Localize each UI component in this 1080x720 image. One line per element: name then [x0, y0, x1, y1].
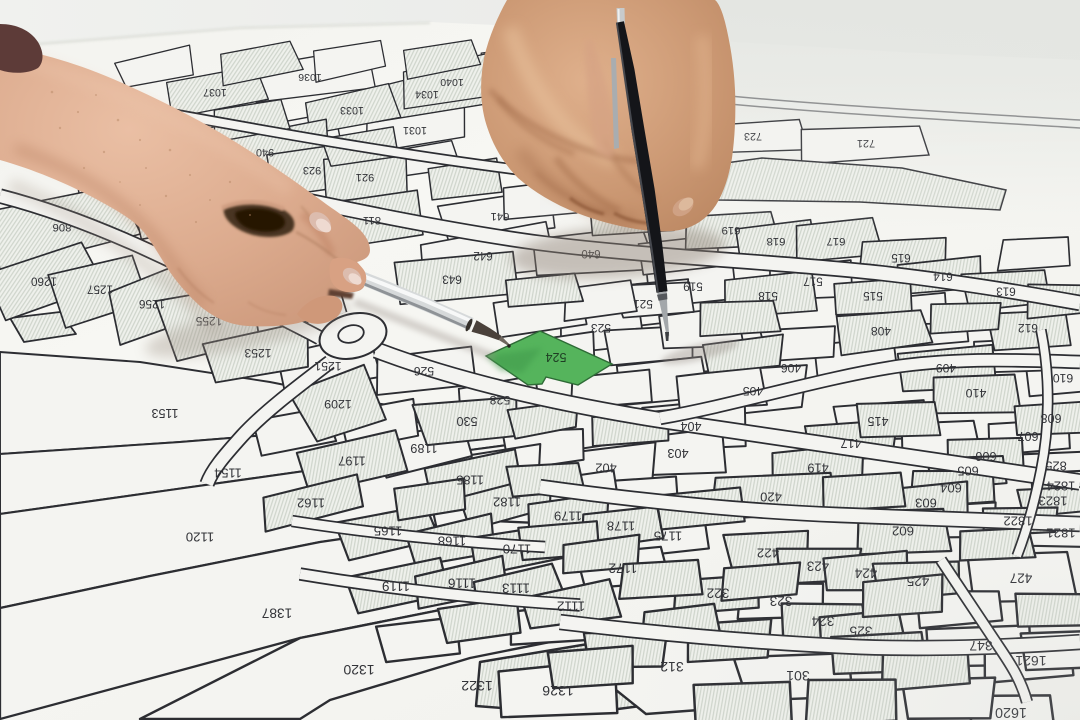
svg-text:615: 615 — [891, 251, 910, 263]
svg-text:643: 643 — [442, 273, 462, 286]
svg-text:1172: 1172 — [609, 561, 638, 576]
svg-text:405: 405 — [743, 384, 764, 398]
svg-text:517: 517 — [803, 275, 823, 288]
svg-text:515: 515 — [863, 289, 883, 303]
svg-text:1040: 1040 — [440, 76, 464, 88]
svg-text:1326: 1326 — [542, 683, 574, 699]
svg-text:825: 825 — [1045, 459, 1066, 474]
svg-text:606: 606 — [975, 449, 996, 463]
svg-text:1320: 1320 — [343, 662, 374, 678]
svg-text:1197: 1197 — [338, 454, 366, 469]
svg-text:409: 409 — [936, 361, 957, 375]
svg-text:1178: 1178 — [607, 519, 635, 534]
svg-text:723: 723 — [744, 130, 762, 142]
svg-text:1033: 1033 — [340, 104, 364, 116]
svg-text:1165: 1165 — [374, 524, 402, 539]
svg-text:1031: 1031 — [403, 124, 427, 136]
svg-text:641: 641 — [491, 210, 510, 222]
svg-text:403: 403 — [667, 446, 688, 460]
svg-text:1119: 1119 — [382, 579, 410, 594]
svg-text:408: 408 — [871, 324, 891, 338]
svg-text:1322: 1322 — [461, 678, 493, 694]
svg-text:528: 528 — [490, 393, 511, 407]
svg-text:1112: 1112 — [557, 599, 585, 614]
svg-text:605: 605 — [957, 464, 978, 479]
svg-text:1260: 1260 — [31, 275, 58, 288]
svg-text:417: 417 — [840, 436, 861, 450]
svg-text:518: 518 — [758, 289, 778, 303]
svg-text:1162: 1162 — [297, 496, 325, 511]
svg-text:1113: 1113 — [502, 581, 530, 596]
svg-text:613: 613 — [996, 285, 1016, 298]
svg-text:618: 618 — [766, 235, 785, 247]
svg-text:419: 419 — [807, 461, 828, 476]
svg-text:519: 519 — [683, 280, 703, 293]
svg-text:1168: 1168 — [438, 534, 466, 549]
svg-text:612: 612 — [1018, 321, 1038, 335]
svg-text:1116: 1116 — [448, 576, 476, 591]
svg-text:404: 404 — [680, 419, 701, 433]
svg-text:1256: 1256 — [138, 297, 165, 311]
svg-text:524: 524 — [546, 350, 567, 364]
svg-text:530: 530 — [457, 414, 478, 428]
svg-text:1209: 1209 — [324, 397, 352, 411]
svg-text:1251: 1251 — [314, 359, 341, 373]
svg-text:1185: 1185 — [456, 473, 484, 488]
svg-text:608: 608 — [1041, 411, 1062, 425]
svg-text:806: 806 — [52, 221, 71, 233]
svg-text:1179: 1179 — [554, 509, 582, 524]
svg-text:940: 940 — [256, 146, 274, 158]
svg-text:1387: 1387 — [262, 606, 292, 621]
svg-text:1182: 1182 — [493, 495, 521, 510]
svg-text:1034: 1034 — [415, 88, 439, 100]
svg-text:523: 523 — [591, 321, 611, 335]
svg-text:406: 406 — [781, 361, 802, 375]
svg-text:811: 811 — [363, 214, 381, 226]
svg-text:410: 410 — [966, 386, 987, 400]
svg-text:526: 526 — [414, 364, 435, 378]
svg-text:921: 921 — [356, 171, 375, 183]
svg-text:1257: 1257 — [87, 283, 113, 296]
svg-text:617: 617 — [826, 235, 845, 247]
svg-text:642: 642 — [473, 249, 492, 261]
svg-text:923: 923 — [303, 164, 321, 176]
svg-text:521: 521 — [633, 297, 653, 311]
svg-text:610: 610 — [1053, 371, 1074, 385]
svg-text:1154: 1154 — [214, 466, 242, 481]
svg-text:614: 614 — [933, 270, 953, 283]
svg-text:1036: 1036 — [298, 71, 322, 83]
svg-text:721: 721 — [857, 137, 875, 149]
svg-text:1189: 1189 — [410, 441, 437, 455]
svg-text:1170: 1170 — [503, 542, 532, 557]
svg-text:607: 607 — [1017, 429, 1038, 443]
svg-text:415: 415 — [868, 414, 889, 428]
svg-text:1120: 1120 — [186, 530, 214, 545]
svg-text:1153: 1153 — [152, 406, 179, 420]
svg-text:1037: 1037 — [203, 86, 227, 98]
svg-text:402: 402 — [595, 461, 616, 476]
